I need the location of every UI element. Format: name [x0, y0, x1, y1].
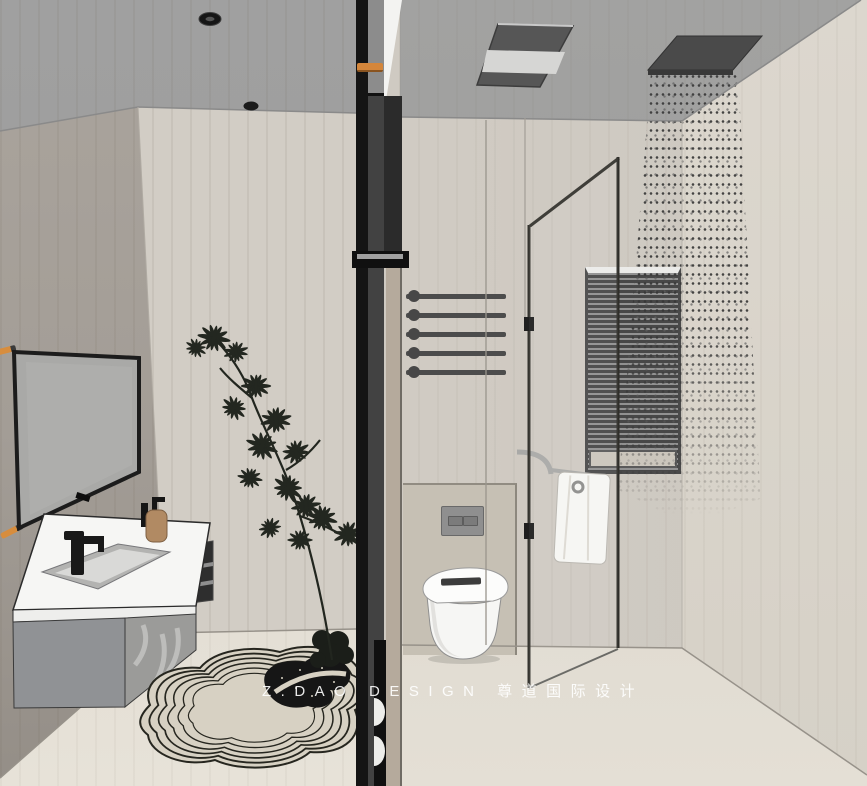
scene-vectors [0, 0, 867, 786]
potted-plant [182, 322, 380, 668]
rain-shower-head [648, 36, 762, 75]
render-canvas: Z.DAO DESIGN 尊道国际设计 [0, 0, 867, 786]
divider-frame [356, 0, 368, 786]
divider-wood-edge [386, 268, 402, 786]
divider-orange-handle [357, 63, 383, 72]
divider-hinge-cap [357, 254, 403, 259]
divider-top-panel [368, 0, 384, 96]
glass-shower-partition [486, 118, 619, 688]
downlight-icons [199, 13, 259, 111]
divider-upper-shadow [384, 96, 402, 268]
plant-foliage [182, 322, 380, 564]
wall-hung-toilet [423, 568, 508, 664]
watermark-text: Z.DAO DESIGN 尊道国际设计 [262, 680, 644, 701]
wall-mirror [14, 352, 139, 528]
ceiling-heater-unit [477, 24, 573, 87]
